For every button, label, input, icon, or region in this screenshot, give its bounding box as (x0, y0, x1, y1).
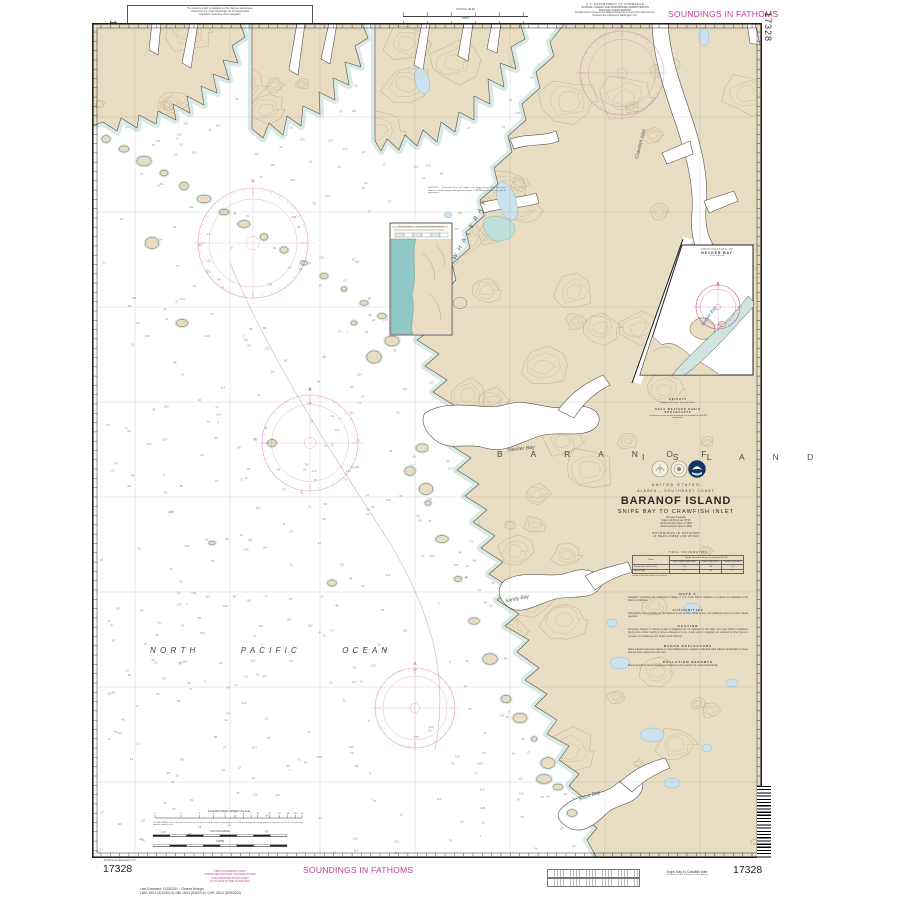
top-note-line: information concerning aids to navigatio… (131, 14, 309, 17)
svg-text:35: 35 (215, 436, 219, 440)
svg-text:94: 94 (297, 225, 301, 229)
svg-text:99: 99 (393, 349, 397, 353)
svg-text:109: 109 (429, 554, 434, 558)
svg-text:99: 99 (163, 801, 167, 805)
svg-text:93: 93 (167, 771, 171, 775)
svg-text:79: 79 (474, 771, 478, 775)
svg-text:80: 80 (369, 313, 373, 317)
svg-text:106: 106 (223, 604, 228, 608)
svg-text:26: 26 (138, 547, 142, 551)
svg-text:122: 122 (256, 506, 261, 510)
svg-text:13: 13 (290, 126, 294, 130)
svg-text:94: 94 (267, 736, 271, 740)
svg-text:71: 71 (215, 405, 219, 409)
svg-text:66: 66 (512, 751, 516, 755)
svg-text:84: 84 (198, 243, 202, 247)
svg-text:73: 73 (527, 751, 531, 755)
svg-text:128: 128 (317, 755, 322, 759)
svg-text:116: 116 (117, 822, 122, 826)
svg-text:18: 18 (323, 444, 327, 448)
svg-text:55: 55 (381, 608, 385, 612)
svg-text:12: 12 (136, 742, 140, 746)
svg-text:22: 22 (238, 765, 242, 769)
svg-text:76: 76 (165, 317, 169, 321)
svg-text:59: 59 (226, 711, 230, 715)
svg-text:99: 99 (237, 446, 241, 450)
tide-value: 9.7 (670, 569, 700, 574)
svg-text:116: 116 (183, 122, 188, 126)
svg-text:129: 129 (161, 830, 166, 834)
svg-text:119: 119 (386, 498, 391, 502)
svg-text:59: 59 (289, 597, 293, 601)
svg-text:117: 117 (244, 674, 249, 678)
svg-text:27: 27 (338, 165, 342, 169)
svg-text:52: 52 (179, 143, 183, 147)
svg-text:93: 93 (339, 109, 343, 113)
svg-text:65: 65 (225, 537, 229, 541)
svg-text:113: 113 (251, 658, 256, 662)
svg-text:101: 101 (352, 680, 357, 684)
svg-text:62: 62 (572, 844, 576, 848)
svg-text:34: 34 (279, 145, 283, 149)
svg-text:121: 121 (244, 338, 249, 342)
svg-text:79: 79 (223, 745, 227, 749)
svg-text:108: 108 (290, 178, 295, 182)
svg-text:27: 27 (253, 634, 257, 638)
svg-text:111: 111 (403, 387, 408, 391)
svg-text:103: 103 (478, 762, 483, 766)
svg-text:15: 15 (362, 186, 366, 190)
tide-row-place: Necker Bay (633, 569, 670, 574)
svg-text:50: 50 (127, 429, 131, 433)
svg-text:133: 133 (244, 547, 249, 551)
svg-text:110: 110 (191, 150, 196, 154)
svg-text:12: 12 (329, 681, 333, 685)
svg-text:114: 114 (221, 386, 226, 390)
svg-text:45: 45 (440, 171, 444, 175)
svg-text:69: 69 (399, 494, 403, 498)
svg-text:100: 100 (180, 297, 185, 301)
svg-text:63: 63 (324, 502, 328, 506)
svg-text:116: 116 (354, 849, 359, 853)
svg-text:67: 67 (259, 175, 263, 179)
svg-text:89: 89 (140, 609, 144, 613)
svg-text:116: 116 (515, 111, 520, 115)
svg-text:66: 66 (364, 181, 368, 185)
svg-text:132: 132 (270, 163, 275, 167)
svg-text:76: 76 (313, 202, 317, 206)
svg-text:112: 112 (518, 776, 523, 780)
svg-text:13: 13 (382, 162, 386, 166)
svg-text:30: 30 (200, 453, 204, 457)
bar-scale-miles-label: NAUTICAL MILES (210, 830, 230, 833)
svg-text:21: 21 (323, 633, 327, 637)
svg-text:73: 73 (240, 478, 244, 482)
svg-text:69: 69 (446, 459, 450, 463)
svg-text:14: 14 (108, 737, 112, 741)
svg-text:15: 15 (246, 214, 250, 218)
title-mini-notes: HEIGHTS Heights in feet above Mean High … (644, 398, 712, 425)
svg-text:119: 119 (205, 594, 210, 598)
speed-scale-note: TO FIND SPEED: Place one point of divide… (153, 822, 303, 827)
projection-line: (World Geodetic System 1984) (610, 526, 742, 529)
svg-text:75: 75 (520, 815, 524, 819)
svg-text:94: 94 (317, 380, 321, 384)
svg-text:31: 31 (478, 588, 482, 592)
svg-text:22: 22 (254, 437, 258, 441)
svg-text:10: 10 (198, 398, 202, 402)
svg-text:13: 13 (366, 512, 370, 516)
svg-text:47: 47 (466, 564, 470, 568)
svg-text:132: 132 (453, 563, 458, 567)
svg-text:42: 42 (541, 795, 545, 799)
svg-text:113: 113 (216, 124, 221, 128)
note-body: Radar reflectors have been placed on man… (628, 649, 748, 655)
svg-text:61: 61 (164, 307, 168, 311)
svg-text:92: 92 (112, 639, 116, 643)
svg-text:57: 57 (178, 662, 182, 666)
svg-text:57: 57 (465, 576, 469, 580)
svg-text:43: 43 (273, 246, 277, 250)
note-body: Report all spills of oil and hazardous s… (628, 665, 748, 668)
bottom-chart-title: Snipe Bay to Crawfish Inlet Southwest Co… (648, 870, 726, 876)
svg-text:69: 69 (413, 455, 417, 459)
svg-text:29: 29 (354, 84, 358, 88)
svg-text:118: 118 (354, 260, 359, 264)
svg-text:17: 17 (421, 554, 425, 558)
svg-text:114: 114 (177, 132, 182, 136)
svg-text:58: 58 (198, 616, 202, 620)
svg-text:18: 18 (100, 558, 104, 562)
svg-text:103: 103 (200, 631, 205, 635)
svg-text:90: 90 (353, 666, 357, 670)
svg-text:116: 116 (242, 701, 247, 705)
svg-text:124: 124 (357, 373, 362, 377)
svg-text:38: 38 (152, 407, 156, 411)
tide-table-title: TIDAL INFORMATION (632, 551, 744, 554)
chart-notes-column: NOTE ANavigation regulations are publish… (628, 592, 748, 673)
svg-text:103: 103 (325, 194, 330, 198)
svg-text:25: 25 (107, 619, 111, 623)
nautical-chart-map: 7971176881127753724111115396626281324012… (92, 23, 762, 858)
svg-text:132: 132 (386, 573, 391, 577)
svg-text:82: 82 (173, 225, 177, 229)
ocean-word: P A C I F I C (241, 646, 298, 655)
title-region: ALASKA – SOUTHEAST COAST (610, 489, 742, 493)
svg-text:131: 131 (184, 544, 189, 548)
svg-text:33: 33 (252, 776, 256, 780)
svg-text:128: 128 (480, 806, 485, 810)
svg-text:98: 98 (177, 699, 181, 703)
svg-text:26: 26 (349, 576, 353, 580)
svg-text:84: 84 (144, 642, 148, 646)
svg-text:30: 30 (284, 359, 288, 363)
svg-text:91: 91 (455, 227, 459, 231)
ocean-word: O C E A N (342, 646, 388, 655)
svg-text:73: 73 (140, 172, 144, 176)
svg-text:72: 72 (470, 539, 474, 543)
svg-text:120: 120 (349, 745, 354, 749)
svg-text:28: 28 (368, 297, 372, 301)
publication-note: Published at Washington, D.C. (104, 859, 136, 862)
svg-text:57: 57 (333, 851, 337, 855)
svg-text:20: 20 (174, 153, 178, 157)
soundings-in-fathoms-bottom: SOUNDINGS IN FATHOMS (303, 865, 413, 875)
svg-text:104: 104 (182, 660, 187, 664)
svg-text:112: 112 (117, 731, 122, 735)
tide-col-place: Place (633, 556, 670, 565)
svg-text:76: 76 (449, 839, 453, 843)
svg-text:47: 47 (265, 594, 269, 598)
svg-text:14: 14 (361, 395, 365, 399)
svg-text:51: 51 (190, 798, 194, 802)
ocean-name-label: N O R T H P A C I F I C O C E A N (150, 646, 388, 655)
mini-note-heading: NOAA WEATHER RADIO BROADCASTS (644, 408, 712, 414)
tide-value: 8.9 (700, 569, 722, 574)
svg-text:93: 93 (300, 491, 304, 495)
svg-text:124: 124 (258, 624, 263, 628)
svg-text:61: 61 (331, 414, 335, 418)
svg-text:51: 51 (321, 595, 325, 599)
print-on-demand-stamp: PRINT-ON-DEMAND CHART CORRECTED THROUGH … (190, 870, 270, 884)
svg-text:62: 62 (400, 812, 404, 816)
svg-text:20: 20 (362, 150, 366, 154)
svg-text:34: 34 (207, 419, 211, 423)
svg-text:11: 11 (190, 687, 193, 691)
svg-text:71: 71 (159, 621, 163, 625)
svg-text:42: 42 (422, 176, 426, 180)
svg-text:93: 93 (187, 681, 191, 685)
svg-text:62: 62 (371, 505, 375, 509)
svg-text:26: 26 (338, 330, 342, 334)
agency-seals (650, 458, 708, 480)
note-heading: CAUTION (628, 624, 748, 628)
svg-text:48: 48 (372, 318, 376, 322)
chart-subtitle: SNIPE BAY TO CRAWFISH INLET (610, 509, 742, 515)
svg-text:43: 43 (247, 467, 251, 471)
svg-text:50: 50 (303, 468, 307, 472)
svg-text:38: 38 (305, 462, 309, 466)
svg-text:128: 128 (291, 215, 296, 219)
svg-text:13: 13 (130, 757, 134, 761)
svg-text:96: 96 (484, 600, 488, 604)
svg-text:81: 81 (521, 737, 525, 741)
svg-text:24: 24 (126, 669, 130, 673)
svg-text:130: 130 (145, 334, 150, 338)
svg-text:66: 66 (307, 730, 311, 734)
mini-note-body: Heights in feet above Mean High Water. (644, 402, 712, 405)
svg-text:27: 27 (120, 217, 124, 221)
svg-text:19: 19 (152, 143, 156, 147)
svg-text:36: 36 (509, 98, 513, 102)
svg-text:118: 118 (414, 735, 419, 739)
svg-text:12: 12 (240, 533, 244, 537)
svg-text:96: 96 (416, 514, 420, 518)
svg-text:70: 70 (193, 284, 197, 288)
svg-text:107: 107 (162, 437, 167, 441)
svg-text:22: 22 (170, 567, 174, 571)
svg-text:58: 58 (466, 659, 470, 663)
svg-text:90: 90 (343, 699, 347, 703)
note-heading: NOTE A (628, 592, 748, 596)
svg-text:21: 21 (361, 584, 365, 588)
inset-caption: CONTINUATION OF NECKER BAY Scale 1:40,00… (687, 248, 747, 257)
svg-text:60: 60 (504, 656, 508, 660)
ocean-word: N O R T H (150, 646, 196, 655)
svg-text:17: 17 (100, 811, 104, 815)
svg-text:113: 113 (480, 787, 485, 791)
correction-line: LNM: 16/14 (4/22/2014), NM: 16/14 (5/3/2… (140, 891, 241, 895)
svg-text:102: 102 (353, 837, 358, 841)
svg-text:50: 50 (482, 751, 486, 755)
svg-text:57: 57 (502, 125, 506, 129)
svg-text:40: 40 (473, 559, 477, 563)
svg-text:86: 86 (265, 829, 269, 833)
svg-text:72: 72 (330, 629, 334, 633)
svg-text:63: 63 (181, 624, 185, 628)
svg-text:66: 66 (226, 686, 230, 690)
svg-text:52: 52 (481, 821, 485, 825)
svg-text:66: 66 (136, 321, 140, 325)
svg-text:108: 108 (191, 591, 196, 595)
svg-text:51: 51 (461, 820, 465, 824)
svg-text:93: 93 (110, 623, 114, 627)
svg-text:21: 21 (309, 160, 313, 164)
svg-text:102: 102 (308, 623, 313, 627)
svg-text:65: 65 (344, 279, 348, 283)
svg-text:125: 125 (247, 538, 252, 542)
svg-text:40: 40 (121, 717, 125, 721)
svg-text:37: 37 (215, 479, 219, 483)
svg-text:112: 112 (189, 205, 194, 209)
svg-text:39: 39 (277, 468, 281, 472)
svg-text:129: 129 (311, 469, 316, 473)
svg-text:129: 129 (354, 465, 359, 469)
svg-text:127: 127 (275, 793, 280, 797)
svg-text:110: 110 (339, 563, 344, 567)
svg-text:130: 130 (394, 840, 399, 844)
svg-text:45: 45 (458, 551, 462, 555)
svg-text:27: 27 (467, 126, 471, 130)
svg-text:35: 35 (396, 411, 400, 415)
svg-text:21: 21 (290, 562, 294, 566)
correction-record: Last Corrected: 11/23/2011 · Cleared thr… (140, 887, 241, 896)
chart-number-bottom-left: 17328 (103, 863, 132, 875)
svg-text:84: 84 (263, 545, 267, 549)
svg-text:29: 29 (418, 518, 422, 522)
svg-text:41: 41 (208, 128, 212, 132)
chart-photo: { "colors":{"magenta":"#c13e8e","land":"… (0, 0, 899, 899)
svg-text:120: 120 (426, 164, 431, 168)
svg-text:75: 75 (297, 758, 301, 762)
title-block: UNITED STATES ALASKA – SOUTHEAST COAST B… (610, 483, 742, 538)
svg-text:44: 44 (141, 838, 145, 842)
svg-text:81: 81 (564, 792, 568, 796)
svg-text:39: 39 (173, 361, 177, 365)
svg-text:105: 105 (131, 296, 136, 300)
svg-text:116: 116 (413, 164, 418, 168)
svg-text:21: 21 (131, 343, 135, 347)
svg-text:77: 77 (234, 683, 238, 687)
svg-text:27: 27 (136, 704, 140, 708)
svg-text:60: 60 (128, 673, 132, 677)
svg-text:86: 86 (560, 827, 564, 831)
svg-text:34: 34 (534, 847, 538, 851)
svg-text:130: 130 (246, 344, 251, 348)
svg-text:83: 83 (249, 327, 253, 331)
svg-text:23: 23 (175, 300, 179, 304)
svg-text:111: 111 (349, 410, 354, 414)
note-body: Navigation regulations are published in … (628, 597, 748, 603)
chart-number-right-edge: 17328 (763, 12, 773, 42)
svg-text:98: 98 (162, 676, 166, 680)
svg-text:113: 113 (448, 467, 453, 471)
svg-text:118: 118 (246, 599, 251, 603)
svg-text:40: 40 (335, 604, 339, 608)
svg-text:46: 46 (217, 278, 221, 282)
note-heading: POLLUTION REPORTS (628, 660, 748, 664)
svg-text:96: 96 (451, 761, 455, 765)
svg-text:32: 32 (179, 580, 183, 584)
svg-text:127: 127 (155, 139, 160, 143)
svg-text:41: 41 (319, 816, 323, 820)
svg-text:128: 128 (110, 690, 115, 694)
svg-text:126: 126 (429, 380, 434, 384)
svg-text:43: 43 (222, 768, 226, 772)
svg-text:22: 22 (155, 661, 159, 665)
title-country: UNITED STATES (610, 483, 742, 487)
svg-text:73: 73 (343, 478, 347, 482)
svg-text:62: 62 (160, 182, 164, 186)
svg-text:91: 91 (176, 137, 180, 141)
svg-text:133: 133 (371, 663, 376, 667)
svg-text:68: 68 (214, 735, 218, 739)
title-soundings-line: AT MEAN LOWER LOW WATER (610, 535, 742, 538)
svg-text:23: 23 (176, 774, 180, 778)
svg-text:63: 63 (128, 304, 132, 308)
svg-text:30: 30 (263, 674, 267, 678)
svg-text:107: 107 (147, 442, 152, 446)
svg-text:119: 119 (351, 109, 356, 113)
svg-text:98: 98 (180, 757, 184, 761)
svg-text:127: 127 (252, 746, 257, 750)
mini-note-body: Continuous marine weather broadcasts are… (644, 415, 712, 420)
svg-text:32: 32 (107, 423, 111, 427)
tide-table-footnote: Heights in feet above datum of soundings… (632, 575, 744, 577)
svg-text:93: 93 (483, 731, 487, 735)
svg-text:71: 71 (358, 401, 362, 405)
svg-text:22: 22 (257, 393, 261, 397)
svg-text:119: 119 (455, 755, 460, 759)
svg-text:55: 55 (428, 729, 432, 733)
svg-text:45: 45 (313, 478, 317, 482)
svg-text:123: 123 (300, 138, 305, 142)
svg-text:53: 53 (360, 680, 364, 684)
svg-text:59: 59 (255, 152, 259, 156)
svg-text:80: 80 (350, 385, 354, 389)
svg-text:92: 92 (172, 807, 176, 811)
svg-text:111: 111 (110, 468, 115, 472)
svg-text:74: 74 (366, 493, 370, 497)
mini-note-heading: HEIGHTS (644, 398, 712, 401)
svg-text:87: 87 (517, 798, 521, 802)
svg-text:92: 92 (117, 607, 121, 611)
svg-text:22: 22 (103, 261, 107, 265)
svg-text:12: 12 (265, 717, 269, 721)
note-heading: RADAR REFLECTORS (628, 644, 748, 648)
svg-text:124: 124 (177, 603, 182, 607)
svg-text:88: 88 (287, 618, 291, 622)
